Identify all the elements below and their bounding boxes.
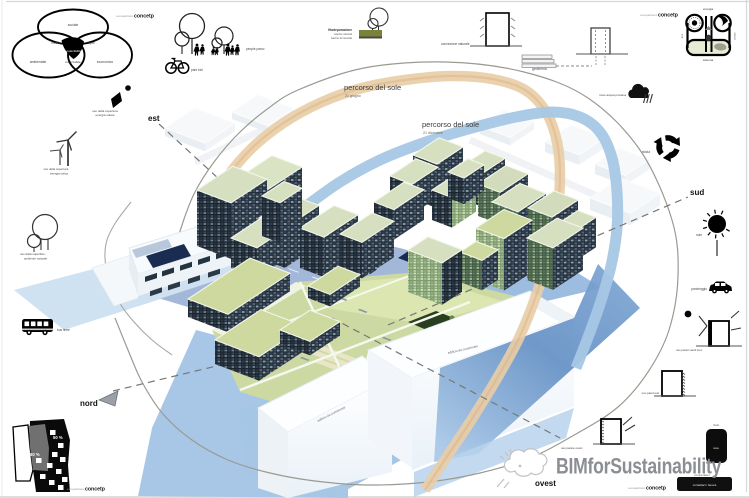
svg-text:est: est <box>148 114 160 123</box>
svg-text:convezione naturale: convezione naturale <box>441 42 470 46</box>
svg-text:bacino di raccolta: bacino di raccolta <box>331 36 352 40</box>
svg-text:BIMforSustainability: BIMforSustainability <box>556 455 721 479</box>
svg-text:concetp: concetp <box>85 486 105 492</box>
svg-text:ecoquartiere: ecoquartiere <box>116 14 133 18</box>
svg-text:fitodepurazione: fitodepurazione <box>328 28 352 32</box>
svg-text:nord: nord <box>80 399 98 408</box>
svg-text:ricicla: ricicla <box>642 150 650 154</box>
svg-text:uso pareti est: uso pareti est <box>642 391 660 395</box>
svg-text:21 giugno: 21 giugno <box>345 94 361 98</box>
svg-text:realizzabile: realizzabile <box>65 60 81 64</box>
svg-text:vasche naturali: vasche naturali <box>334 32 352 36</box>
svg-text:concetp: concetp <box>646 485 666 491</box>
svg-text:energia: energia <box>703 7 713 11</box>
svg-text:sistema: sistema <box>703 58 714 62</box>
svg-text:contattaci / lavora: contattaci / lavora <box>693 483 717 487</box>
svg-text:uso parete ovest: uso parete ovest <box>561 446 583 450</box>
svg-text:eco: eco <box>680 33 684 38</box>
svg-text:sole: sole <box>696 233 702 237</box>
svg-text:people parco: people parco <box>246 47 265 51</box>
svg-text:park bici: park bici <box>191 68 203 72</box>
svg-text:ovest: ovest <box>535 479 556 488</box>
svg-text:economico: economico <box>97 60 114 64</box>
svg-text:uso della superficie:: uso della superficie: <box>20 252 46 256</box>
svg-text:smart: smart <box>733 33 737 40</box>
svg-text:sociale: sociale <box>68 23 79 27</box>
svg-text:parcheggio: parcheggio <box>691 287 707 291</box>
svg-text:vivibile: vivibile <box>51 41 61 45</box>
svg-text:ecoquartiere: ecoquartiere <box>67 487 84 491</box>
svg-text:ecoquartiere: ecoquartiere <box>640 13 657 17</box>
svg-text:50 %: 50 % <box>53 435 63 440</box>
svg-text:geotermia: geotermia <box>532 67 547 71</box>
svg-text:percorso del sole: percorso del sole <box>344 83 401 92</box>
svg-text:ambientale: ambientale <box>30 60 47 64</box>
svg-text:uso pareti ventil sud: uso pareti ventil sud <box>676 348 702 352</box>
svg-text:energia eolica: energia eolica <box>50 172 68 176</box>
svg-text:huila: huila <box>713 423 719 427</box>
svg-text:sostenibilità: sostenibilità <box>65 49 81 53</box>
svg-text:percorso del sole: percorso del sole <box>422 120 479 129</box>
svg-text:50 %: 50 % <box>30 452 40 457</box>
svg-text:energia solare: energia solare <box>95 113 114 117</box>
svg-text:21 dicembre: 21 dicembre <box>423 131 443 135</box>
svg-text:riuso acqua piovana: riuso acqua piovana <box>599 93 626 97</box>
svg-text:sud: sud <box>690 188 704 197</box>
svg-text:concetp: concetp <box>134 13 154 19</box>
svg-text:ecoquartiere: ecoquartiere <box>628 486 645 490</box>
svg-text:case: case <box>713 446 719 450</box>
svg-text:ambiente naturale: ambiente naturale <box>24 257 48 261</box>
svg-text:uso della copertura:: uso della copertura: <box>44 167 70 171</box>
svg-text:bus linee: bus linee <box>57 328 70 332</box>
svg-text:concetp: concetp <box>658 12 678 18</box>
svg-text:equo: equo <box>87 41 94 45</box>
